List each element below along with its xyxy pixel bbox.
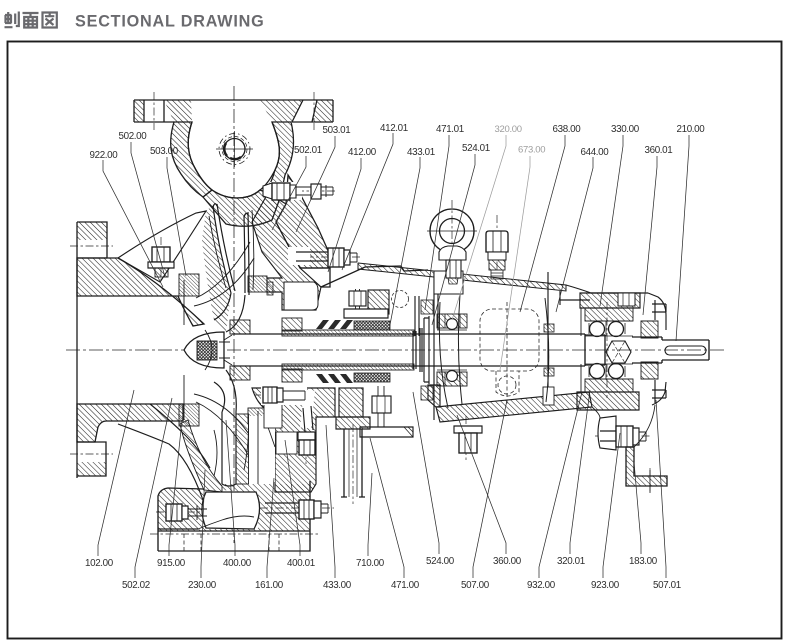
svg-text:524.00: 524.00: [426, 556, 455, 567]
svg-text:320.01: 320.01: [557, 556, 585, 567]
svg-text:923.00: 923.00: [591, 580, 620, 591]
svg-text:502.01: 502.01: [294, 145, 322, 156]
svg-text:161.00: 161.00: [255, 580, 284, 591]
svg-text:644.00: 644.00: [581, 147, 610, 158]
svg-text:503.00: 503.00: [150, 146, 179, 157]
svg-text:502.02: 502.02: [122, 580, 150, 591]
svg-text:412.00: 412.00: [348, 147, 377, 158]
svg-text:507.01: 507.01: [653, 580, 681, 591]
svg-text:922.00: 922.00: [90, 150, 119, 161]
svg-text:412.01: 412.01: [380, 123, 408, 134]
svg-text:471.00: 471.00: [391, 580, 420, 591]
svg-text:230.00: 230.00: [188, 580, 217, 591]
svg-text:330.00: 330.00: [611, 124, 640, 135]
svg-text:400.00: 400.00: [223, 558, 252, 569]
svg-text:915.00: 915.00: [157, 558, 186, 569]
svg-text:932.00: 932.00: [527, 580, 556, 591]
svg-text:360.00: 360.00: [493, 556, 522, 567]
svg-text:502.00: 502.00: [119, 131, 148, 142]
svg-text:710.00: 710.00: [356, 558, 385, 569]
svg-text:673.00: 673.00: [518, 145, 545, 156]
svg-text:SECTIONAL DRAWING: SECTIONAL DRAWING: [75, 13, 265, 31]
svg-text:183.00: 183.00: [629, 556, 658, 567]
svg-text:433.00: 433.00: [323, 580, 352, 591]
svg-text:471.01: 471.01: [436, 124, 464, 135]
svg-text:524.01: 524.01: [462, 143, 490, 154]
svg-text:400.01: 400.01: [287, 558, 315, 569]
svg-text:507.00: 507.00: [461, 580, 490, 591]
svg-text:210.00: 210.00: [677, 124, 706, 135]
svg-text:320.00: 320.00: [495, 124, 522, 135]
svg-text:360.01: 360.01: [645, 145, 673, 156]
svg-text:503.01: 503.01: [323, 125, 351, 136]
svg-text:433.01: 433.01: [407, 147, 435, 158]
svg-text:638.00: 638.00: [553, 124, 582, 135]
svg-text:102.00: 102.00: [85, 558, 114, 569]
